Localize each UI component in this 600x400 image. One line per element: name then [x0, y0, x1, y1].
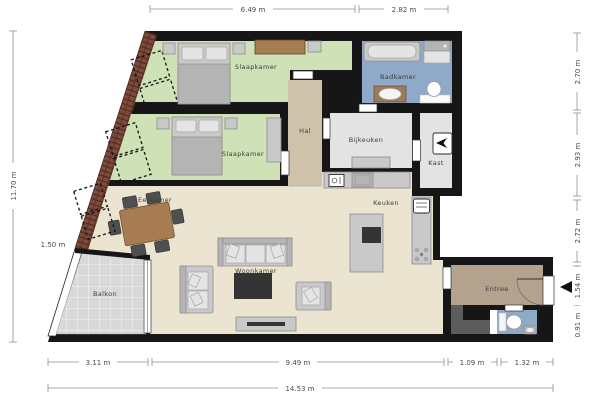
bathtub-inner — [368, 45, 416, 58]
tall-wardrobe — [267, 118, 281, 162]
door-slaapkamer-2 — [281, 151, 289, 175]
dining-chair — [131, 244, 147, 257]
dining-chair — [171, 209, 184, 225]
armchair-back — [325, 282, 331, 310]
dim-label-right1: 2.70 m — [574, 60, 582, 85]
shower-faucet — [444, 45, 447, 48]
boiler-icon — [433, 133, 452, 154]
sofa-arm — [218, 238, 223, 266]
door-bijkeuken — [323, 118, 330, 139]
room-label-woonkamer: Woonkamer — [235, 267, 277, 275]
dim-label-right5: 0.91 m — [574, 313, 582, 338]
nightstand — [163, 43, 175, 54]
door-kast — [413, 140, 421, 161]
bed-pillow — [206, 47, 227, 60]
toilet-bowl — [427, 82, 441, 97]
entrance-arrow-icon — [560, 281, 572, 293]
nightstand — [225, 118, 237, 129]
burner-petal — [424, 248, 429, 253]
door-toilet — [505, 305, 523, 311]
sofa-cushion — [246, 245, 265, 263]
washer-unit — [352, 157, 390, 168]
sofa-two-seat — [180, 266, 213, 313]
toilet-tank — [499, 313, 506, 331]
dim-label-bottom3: 1.09 m — [460, 359, 485, 367]
dimension-top: 6.49 m 2.82 m — [150, 4, 448, 14]
fridge-icon — [414, 199, 430, 213]
dishwasher-box — [329, 175, 344, 187]
bed — [172, 117, 222, 175]
room-label-bijkeuken: Bijkeuken — [349, 136, 384, 144]
dim-label-bottom1: 3.11 m — [86, 359, 111, 367]
bed-blanket — [178, 64, 230, 104]
dim-label-right2: 2.93 m — [574, 143, 582, 168]
tv-screen — [247, 322, 285, 326]
fridge-box — [414, 199, 430, 213]
dimension-bottom: 3.11 m 9.49 m 1.09 m 1.32 m 14.53 m — [48, 357, 553, 393]
toilet-bowl — [507, 315, 522, 329]
front-door-leaf-slot — [543, 276, 554, 305]
dim-label-top2: 2.82 m — [392, 6, 417, 14]
duct-gap — [490, 310, 497, 334]
dim-label-top1: 6.49 m — [241, 6, 266, 14]
sink-basin — [379, 89, 401, 100]
room-label-eetkamer: Eetkamer — [138, 196, 172, 204]
bed-blanket — [172, 137, 222, 175]
island-sink — [362, 227, 381, 243]
dim-label-left1: 11.70 m — [10, 171, 18, 200]
door-slaapkamer-1 — [293, 71, 313, 79]
bed-pillow — [176, 120, 196, 132]
dimension-right: 2.70 m 2.93 m 2.72 m 1.54 m 0.91 m — [571, 33, 583, 344]
dining-chair — [122, 195, 138, 208]
sideboard-wood — [255, 40, 305, 54]
room-label-kast: Kast — [428, 159, 444, 167]
door-badkamer — [359, 104, 377, 112]
room-label-slaapkamer-1: Slaapkamer — [235, 63, 277, 71]
burner-petal — [415, 257, 420, 262]
room-label-slaapkamer-2: Slaapkamer — [222, 150, 264, 158]
bed-pillow — [199, 120, 219, 132]
dim-label-right4: 1.54 m — [574, 274, 582, 299]
burner-center — [420, 253, 423, 256]
room-label-balkon: Balkon — [93, 290, 117, 298]
dishwasher-icon — [329, 175, 344, 187]
room-label-badkamer: Badkamer — [380, 73, 416, 81]
sofa-back — [218, 238, 292, 244]
vanity-sink — [374, 86, 406, 102]
burner-petal — [424, 257, 429, 262]
kitchen-island — [350, 214, 383, 272]
floorplan-canvas: Slaapkamer Slaapkamer Badkamer Hal Bijke… — [0, 0, 600, 400]
dim-label-total: 14.53 m — [285, 385, 314, 393]
armchair — [296, 282, 331, 310]
small-sink-basin — [526, 328, 534, 333]
door-entree-living — [443, 267, 451, 289]
burner-petal — [415, 248, 420, 253]
nightstand — [233, 43, 245, 54]
dining-chair — [154, 240, 170, 253]
bed — [178, 43, 230, 104]
room-label-hal: Hal — [299, 127, 311, 135]
cabinet — [308, 41, 321, 52]
room-label-entree: Entree — [485, 285, 508, 293]
rug-tv-table — [234, 273, 272, 299]
tv-sideboard — [236, 317, 296, 331]
bed-pillow — [182, 47, 203, 60]
sofa-arm — [287, 238, 292, 266]
dim-label-bottom4: 1.32 m — [515, 359, 540, 367]
sofa-three-seat — [218, 238, 292, 266]
nightstand — [157, 118, 169, 129]
cooktop-inner — [355, 175, 370, 185]
room-label-keuken: Keuken — [373, 199, 399, 207]
dim-label-bottom2: 9.49 m — [286, 359, 311, 367]
dimension-left: 11.70 m 1.50 m — [7, 31, 65, 342]
dim-label-balcony-depth: 1.50 m — [41, 241, 66, 249]
sofa-back — [180, 266, 186, 313]
dim-label-right3: 2.72 m — [574, 219, 582, 244]
